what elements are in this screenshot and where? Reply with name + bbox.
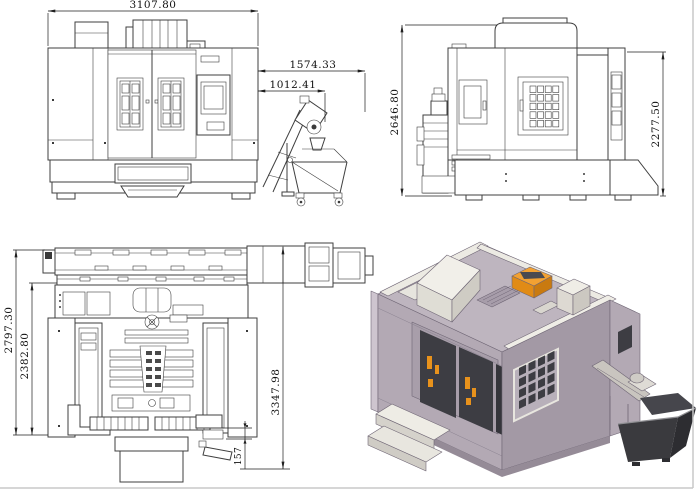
cad-drawing-sheet: 3107.80 1574.33 1012.41 xyxy=(0,0,699,493)
front-view-chip-cart xyxy=(292,149,347,206)
side-view: 2646.80 2277.50 xyxy=(389,18,666,200)
front-view-machine xyxy=(48,20,258,199)
dim-label-conveyor-overall: 1574.33 xyxy=(290,59,337,71)
dim-top-rear-offset: 157 xyxy=(222,421,252,469)
top-view: 2797.30 2382.80 3347.98 157 xyxy=(3,243,373,482)
dim-label-overall-depth: 2797.30 xyxy=(3,307,15,354)
drawing-canvas: 3107.80 1574.33 1012.41 xyxy=(0,0,699,493)
dim-label-rear-offset: 157 xyxy=(234,447,244,465)
side-view-machine xyxy=(417,18,658,200)
dim-label-column-height: 2277.50 xyxy=(650,101,662,148)
isometric-view xyxy=(368,242,696,477)
dim-label-overall-height: 2646.80 xyxy=(389,89,401,136)
dim-label-conveyor-first: 1012.41 xyxy=(270,79,317,91)
top-view-machine xyxy=(43,243,373,482)
front-view-chip-conveyor xyxy=(263,96,327,196)
dim-label-total-length: 3347.98 xyxy=(270,369,282,416)
dim-label-overall-width: 3107.80 xyxy=(130,0,177,11)
front-view: 3107.80 1574.33 1012.41 xyxy=(48,0,365,206)
dim-label-body-depth: 2382.80 xyxy=(19,333,31,380)
